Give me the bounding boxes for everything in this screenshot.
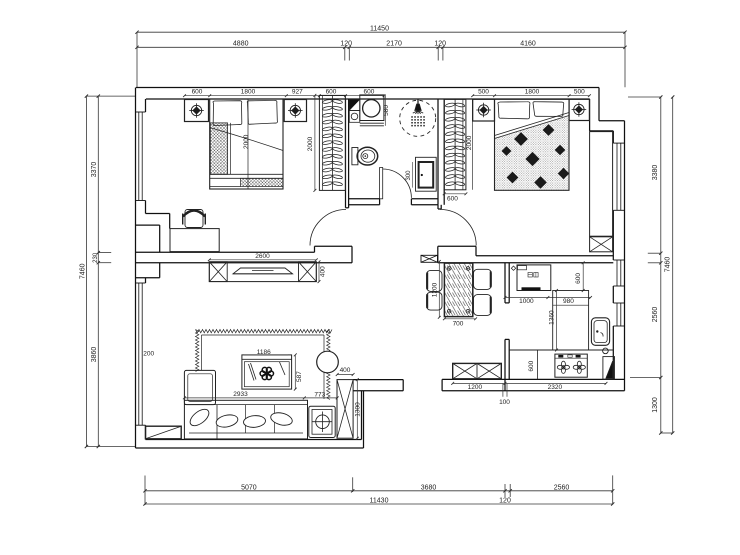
svg-text:230: 230 <box>93 252 99 263</box>
svg-text:11430: 11430 <box>370 497 389 504</box>
svg-text:2000: 2000 <box>307 136 314 151</box>
svg-text:2000: 2000 <box>243 134 250 149</box>
svg-text:1200: 1200 <box>468 384 483 391</box>
svg-text:600: 600 <box>363 88 374 95</box>
svg-text:1200: 1200 <box>432 282 439 297</box>
svg-text:927: 927 <box>292 88 303 95</box>
svg-text:1800: 1800 <box>241 88 256 95</box>
svg-text:5070: 5070 <box>241 484 257 491</box>
svg-text:2320: 2320 <box>548 384 563 391</box>
svg-text:7460: 7460 <box>665 257 672 273</box>
svg-text:600: 600 <box>528 360 535 371</box>
svg-text:1800: 1800 <box>525 88 540 95</box>
svg-text:600: 600 <box>575 273 582 284</box>
svg-text:11450: 11450 <box>370 26 389 33</box>
svg-text:400: 400 <box>340 367 351 374</box>
svg-text:580: 580 <box>383 105 390 116</box>
svg-text:100: 100 <box>499 399 510 406</box>
svg-text:1300: 1300 <box>354 402 361 417</box>
svg-text:3860: 3860 <box>91 347 98 363</box>
svg-text:587: 587 <box>296 371 303 382</box>
svg-text:2600: 2600 <box>255 253 270 260</box>
svg-text:1300: 1300 <box>652 397 659 413</box>
svg-text:700: 700 <box>453 320 464 327</box>
svg-text:600: 600 <box>192 88 203 95</box>
svg-text:3370: 3370 <box>91 162 98 178</box>
svg-text:3680: 3680 <box>421 484 437 491</box>
svg-text:120: 120 <box>499 497 511 504</box>
svg-text:500: 500 <box>478 88 489 95</box>
svg-text:600: 600 <box>326 88 337 95</box>
svg-text:2560: 2560 <box>554 484 570 491</box>
svg-text:400: 400 <box>320 266 327 277</box>
svg-text:2933: 2933 <box>233 391 248 398</box>
svg-text:2000: 2000 <box>466 135 473 150</box>
svg-text:3380: 3380 <box>652 165 659 181</box>
svg-text:200: 200 <box>143 351 154 358</box>
svg-text:600: 600 <box>447 195 458 202</box>
svg-text:980: 980 <box>563 298 574 305</box>
svg-text:1000: 1000 <box>519 298 534 305</box>
svg-text:4880: 4880 <box>233 40 249 47</box>
svg-text:7460: 7460 <box>79 263 86 279</box>
svg-text:2560: 2560 <box>652 307 659 323</box>
svg-text:2170: 2170 <box>386 40 402 47</box>
svg-text:4160: 4160 <box>520 40 536 47</box>
svg-text:1360: 1360 <box>548 310 555 325</box>
svg-text:300: 300 <box>406 170 412 181</box>
svg-text:500: 500 <box>574 88 585 95</box>
svg-text:773: 773 <box>314 392 325 399</box>
